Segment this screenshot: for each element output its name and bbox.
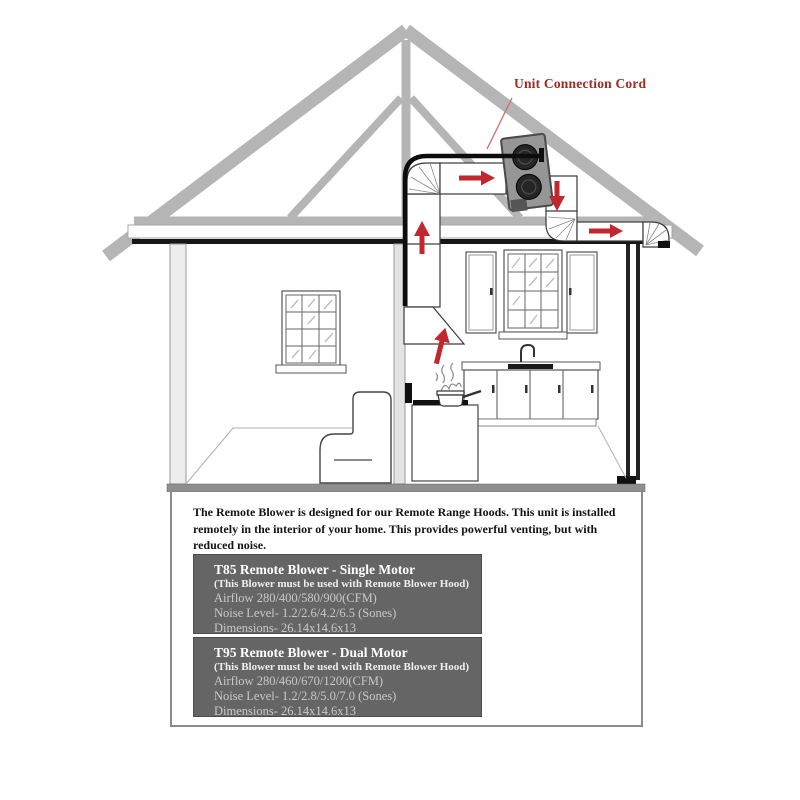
living-room (276, 291, 391, 483)
product-airflow: Airflow 280/460/670/1200(CFM) (214, 674, 481, 689)
product-airflow: Airflow 280/400/580/900(CFM) (214, 591, 481, 606)
product-note: (This Blower must be used with Remote Bl… (214, 578, 481, 591)
intro-paragraph: The Remote Blower is designed for our Re… (193, 504, 641, 554)
sink (508, 364, 553, 369)
right-wall-outer-line (626, 244, 630, 480)
truss-web-left (290, 98, 401, 218)
floor-band (167, 484, 645, 492)
product-dimensions: Dimensions- 26.14x14.6x13 (214, 621, 481, 634)
unit-connection-cord-label: Unit Connection Cord (514, 76, 646, 92)
armchair (320, 392, 391, 483)
spec-box-t85: T85 Remote Blower - Single Motor (This B… (193, 554, 482, 634)
range-stove (412, 405, 478, 481)
window-sill (276, 365, 346, 373)
product-dimensions: Dimensions- 26.14x14.6x13 (214, 704, 481, 717)
product-noise: Noise Level- 1.2/2.6/4.2/6.5 (Sones) (214, 606, 481, 621)
left-exterior-wall (170, 244, 186, 484)
remote-blower-unit (501, 134, 554, 213)
range-hood-canopy (404, 307, 464, 344)
info-panel: The Remote Blower is designed for our Re… (170, 492, 643, 727)
product-title: T85 Remote Blower - Single Motor (214, 562, 481, 578)
page: Unit Connection Cord The Remote Blower i… (0, 0, 800, 800)
spec-box-t95: T95 Remote Blower - Dual Motor (This Blo… (193, 637, 482, 717)
house-cross-section-diagram (0, 0, 800, 492)
toe-kick (466, 419, 596, 426)
product-note: (This Blower must be used with Remote Bl… (214, 661, 481, 674)
kitchen (404, 241, 600, 481)
faucet (521, 345, 534, 362)
intro-line: reduced noise. (193, 537, 641, 554)
product-noise: Noise Level- 1.2/2.8/5.0/7.0 (Sones) (214, 689, 481, 704)
cord-switch-box (405, 383, 412, 403)
intro-line: remotely in the interior of your home. T… (193, 521, 641, 538)
perspective-lines (186, 426, 626, 484)
right-wall-inner-line (636, 244, 640, 480)
cord-connector (539, 148, 544, 162)
vent-outlet (658, 241, 670, 248)
intro-line: The Remote Blower is designed for our Re… (193, 504, 641, 521)
kitchen-window-sill (499, 332, 567, 339)
product-title: T95 Remote Blower - Dual Motor (214, 645, 481, 661)
steam (436, 363, 453, 383)
lower-cabinets (464, 370, 598, 419)
